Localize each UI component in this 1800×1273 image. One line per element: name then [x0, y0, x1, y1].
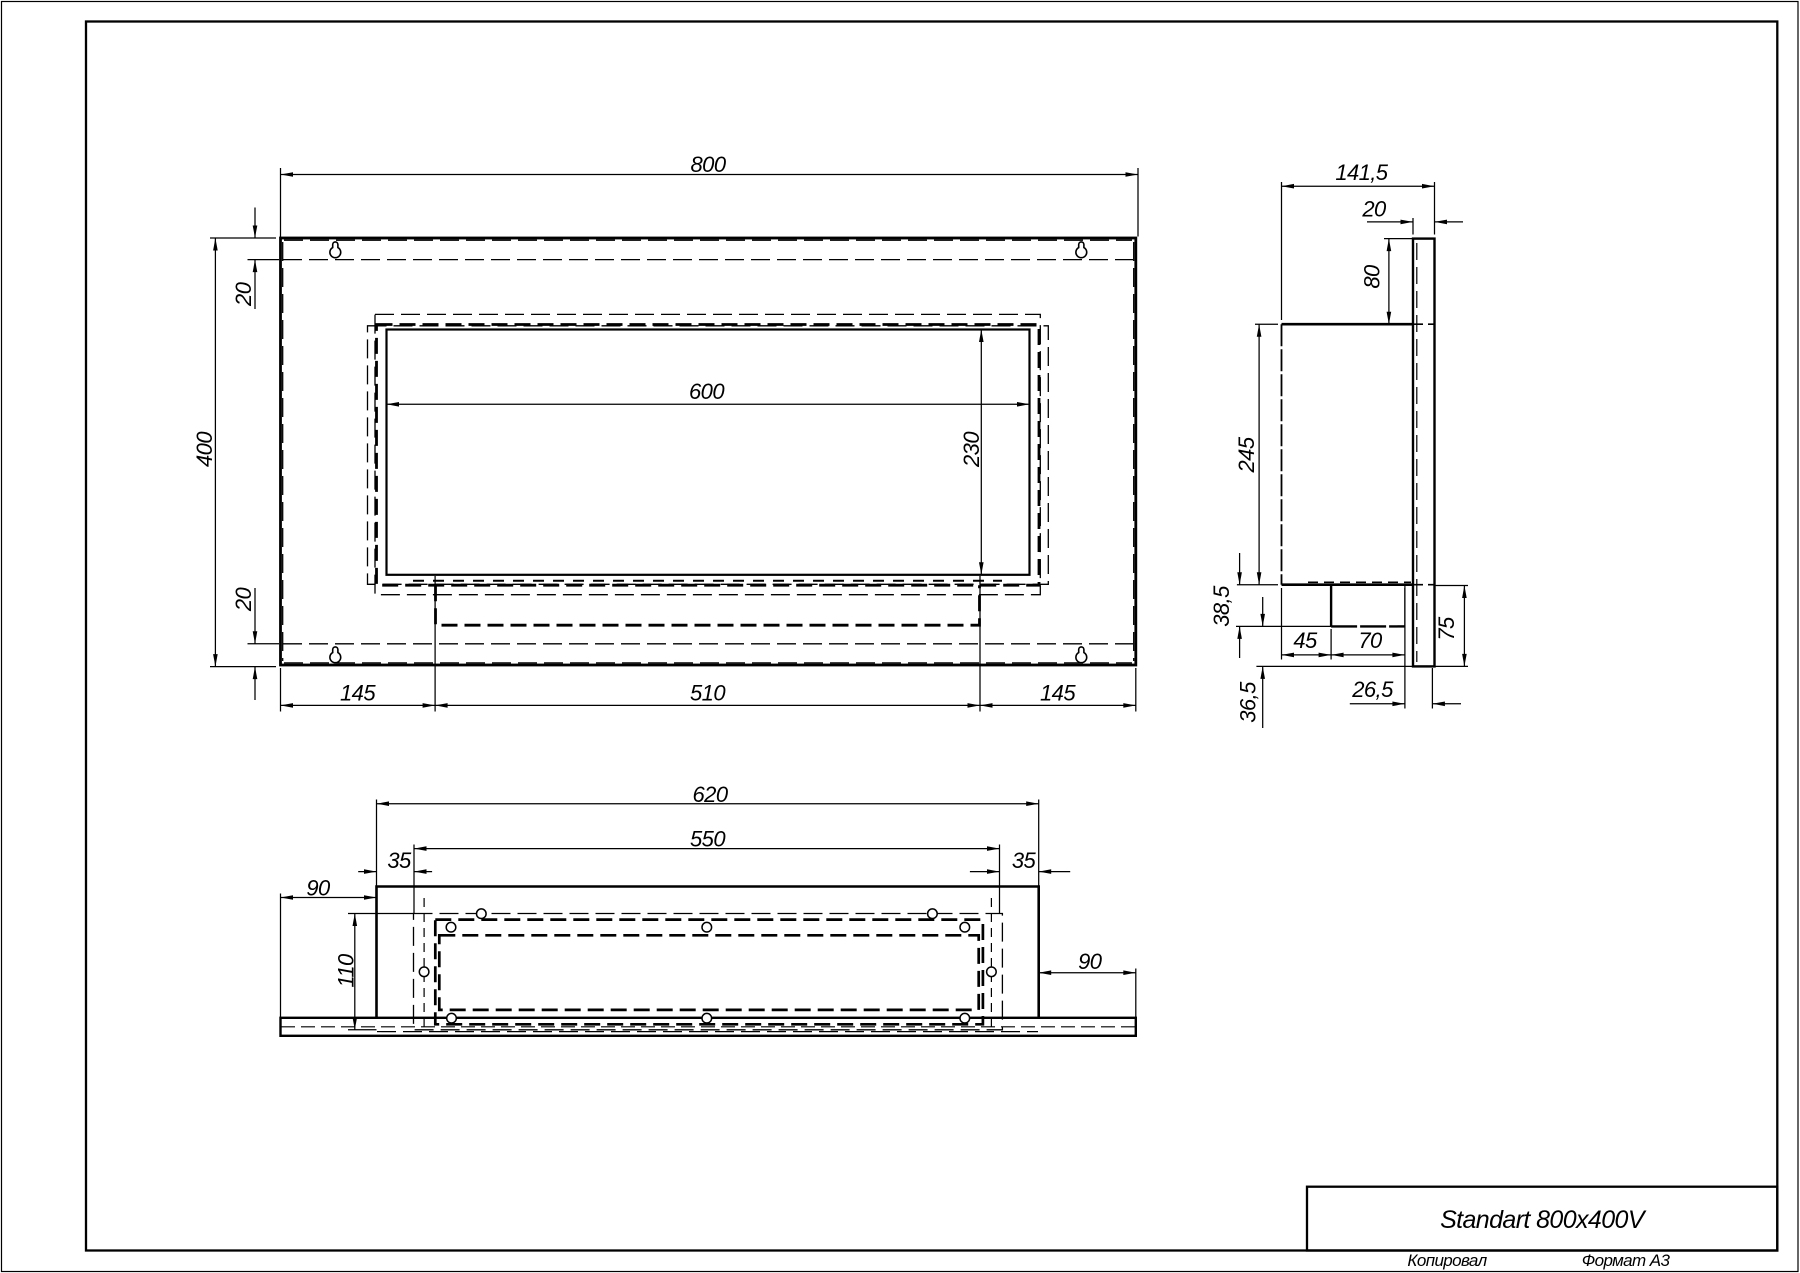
svg-text:800: 800 [691, 152, 727, 177]
svg-text:550: 550 [690, 827, 726, 852]
svg-text:145: 145 [340, 681, 376, 706]
svg-text:Standart 800x400V: Standart 800x400V [1440, 1206, 1647, 1234]
svg-text:36,5: 36,5 [1236, 681, 1261, 723]
svg-text:70: 70 [1358, 628, 1383, 653]
svg-text:75: 75 [1434, 616, 1459, 641]
svg-text:20: 20 [231, 587, 256, 613]
svg-text:510: 510 [690, 681, 726, 706]
svg-text:230: 230 [959, 431, 984, 468]
svg-text:400: 400 [192, 431, 217, 467]
svg-text:35: 35 [387, 848, 412, 873]
svg-text:35: 35 [1012, 848, 1037, 873]
svg-text:245: 245 [1234, 436, 1259, 473]
svg-text:145: 145 [1040, 681, 1076, 706]
svg-text:141,5: 141,5 [1335, 160, 1388, 185]
svg-text:Формат А3: Формат А3 [1582, 1251, 1671, 1270]
svg-text:45: 45 [1293, 628, 1318, 653]
svg-text:20: 20 [231, 281, 256, 307]
svg-text:20: 20 [1361, 197, 1387, 222]
svg-text:90: 90 [1078, 949, 1103, 974]
svg-text:620: 620 [693, 782, 729, 807]
svg-text:600: 600 [689, 379, 725, 404]
svg-text:Копировал: Копировал [1407, 1251, 1487, 1270]
svg-text:110: 110 [334, 953, 359, 988]
svg-text:38,5: 38,5 [1209, 585, 1234, 627]
svg-text:26,5: 26,5 [1351, 677, 1394, 702]
svg-text:80: 80 [1360, 264, 1385, 289]
svg-text:90: 90 [306, 876, 331, 901]
